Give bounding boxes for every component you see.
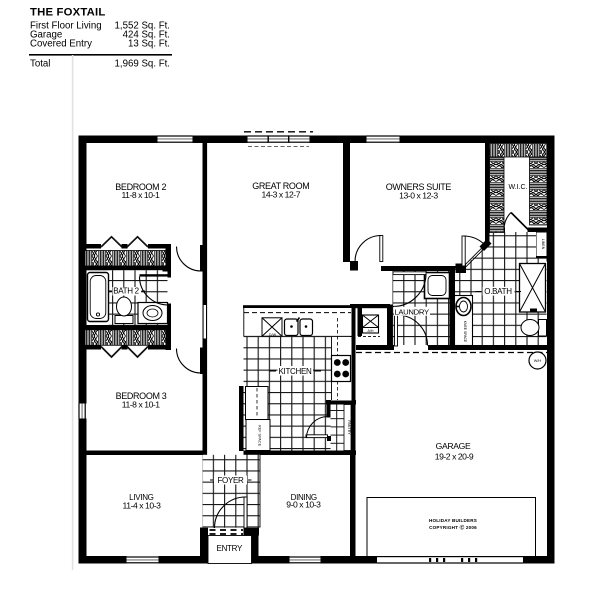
- svg-text:Total: Total: [30, 59, 50, 70]
- svg-text:14-3 x 12-7: 14-3 x 12-7: [262, 190, 301, 200]
- svg-text:W/H: W/H: [534, 359, 542, 363]
- svg-text:Covered Entry: Covered Entry: [30, 39, 92, 50]
- svg-text:THE FOXTAIL: THE FOXTAIL: [30, 7, 105, 19]
- svg-text:11-8 x 10-1: 11-8 x 10-1: [121, 190, 160, 200]
- svg-text:BATH 2: BATH 2: [113, 287, 139, 296]
- svg-text:LAUNDRY: LAUNDRY: [394, 307, 429, 316]
- svg-text:13-0 x 12-3: 13-0 x 12-3: [399, 191, 438, 201]
- svg-text:11-8 x 10-1: 11-8 x 10-1: [122, 400, 161, 410]
- svg-text:GARAGE: GARAGE: [436, 441, 471, 451]
- svg-text:O.BATH: O.BATH: [484, 287, 512, 296]
- svg-text:D/W: D/W: [269, 333, 277, 337]
- svg-text:REF SPACE: REF SPACE: [258, 425, 262, 447]
- svg-text:COPYRIGHT Ⓒ 2006: COPYRIGHT Ⓒ 2006: [429, 524, 477, 531]
- svg-text:FOYER: FOYER: [217, 476, 244, 485]
- svg-text:9-0 x 10-3: 9-0 x 10-3: [286, 499, 321, 509]
- svg-text:LINEN: LINEN: [541, 239, 545, 250]
- svg-text:HOLIDAY BUILDERS: HOLIDAY BUILDERS: [429, 518, 477, 523]
- svg-text:KITCHEN: KITCHEN: [278, 367, 312, 376]
- svg-text:PANTRY: PANTRY: [347, 420, 351, 435]
- svg-text:ENTRY: ENTRY: [217, 544, 243, 553]
- svg-text:W.I.C.: W.I.C.: [508, 184, 527, 191]
- svg-text:A/H: A/H: [368, 329, 374, 333]
- svg-text:11-4 x 10-3: 11-4 x 10-3: [123, 500, 162, 510]
- svg-text:19-2 x 20-9: 19-2 x 20-9: [435, 451, 474, 461]
- svg-text:KNEE SPACE: KNEE SPACE: [463, 321, 467, 343]
- svg-text:1,969 Sq. Ft.: 1,969 Sq. Ft.: [115, 59, 170, 70]
- svg-text:13 Sq. Ft.: 13 Sq. Ft.: [128, 39, 170, 50]
